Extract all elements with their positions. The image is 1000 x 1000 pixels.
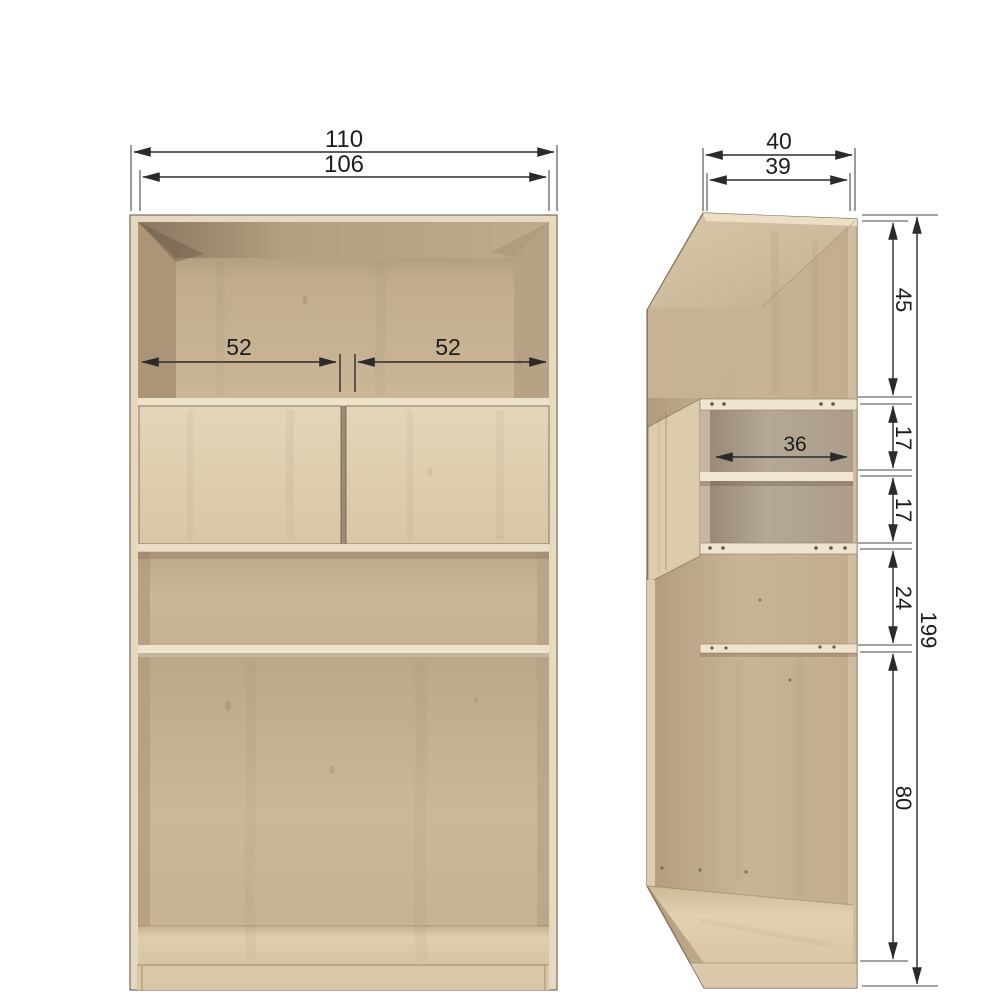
- dim-label-front-inner-width: 106: [324, 151, 364, 178]
- front-right-door: [346, 406, 549, 544]
- dim-label-side-shelf-depth: 36: [783, 433, 806, 456]
- front-compartment-bottom-edge: [138, 544, 549, 552]
- side-back-panel-edge: [848, 226, 857, 963]
- dim-label-side-total-height: 199: [916, 612, 941, 649]
- front-view: [130, 215, 557, 990]
- side-front-edge-strip: [647, 580, 655, 886]
- dim-label-front-right-compartment: 52: [435, 334, 461, 360]
- side-box-middle-shelf: [700, 472, 853, 481]
- dim-label-side-bottom-section: 80: [891, 786, 916, 810]
- front-middle-open-section: [138, 552, 549, 645]
- dim-label-side-middle-section: 24: [891, 586, 916, 610]
- dim-label-side-door-lower: 17: [891, 498, 916, 522]
- dim-label-side-outer-depth: 40: [766, 128, 792, 154]
- front-top-open-section: [138, 222, 549, 398]
- front-shelf: [138, 645, 549, 657]
- dim-label-side-inner-depth: 39: [765, 153, 791, 179]
- front-plinth: [137, 965, 549, 990]
- front-door-compartment: [138, 398, 549, 552]
- side-view: [647, 213, 857, 988]
- front-compartment-top-edge: [138, 398, 549, 406]
- side-plinth: [690, 963, 857, 988]
- side-box-front-face: [648, 399, 700, 583]
- dim-label-front-left-compartment: 52: [226, 334, 252, 360]
- front-floor: [138, 926, 549, 965]
- dim-label-front-outer-width: 110: [325, 126, 363, 153]
- dim-label-side-top-section: 45: [891, 288, 916, 312]
- front-door-gap: [341, 406, 346, 544]
- dim-label-side-door-upper: 17: [891, 426, 916, 450]
- furniture-dimension-diagram: 110 106 52 52 40 39 36: [0, 0, 1000, 1000]
- front-bottom-open-section: [138, 657, 549, 965]
- diagram-svg: 110 106 52 52 40 39 36: [0, 0, 1000, 1000]
- front-left-door: [139, 406, 341, 544]
- side-shelf: [700, 644, 857, 657]
